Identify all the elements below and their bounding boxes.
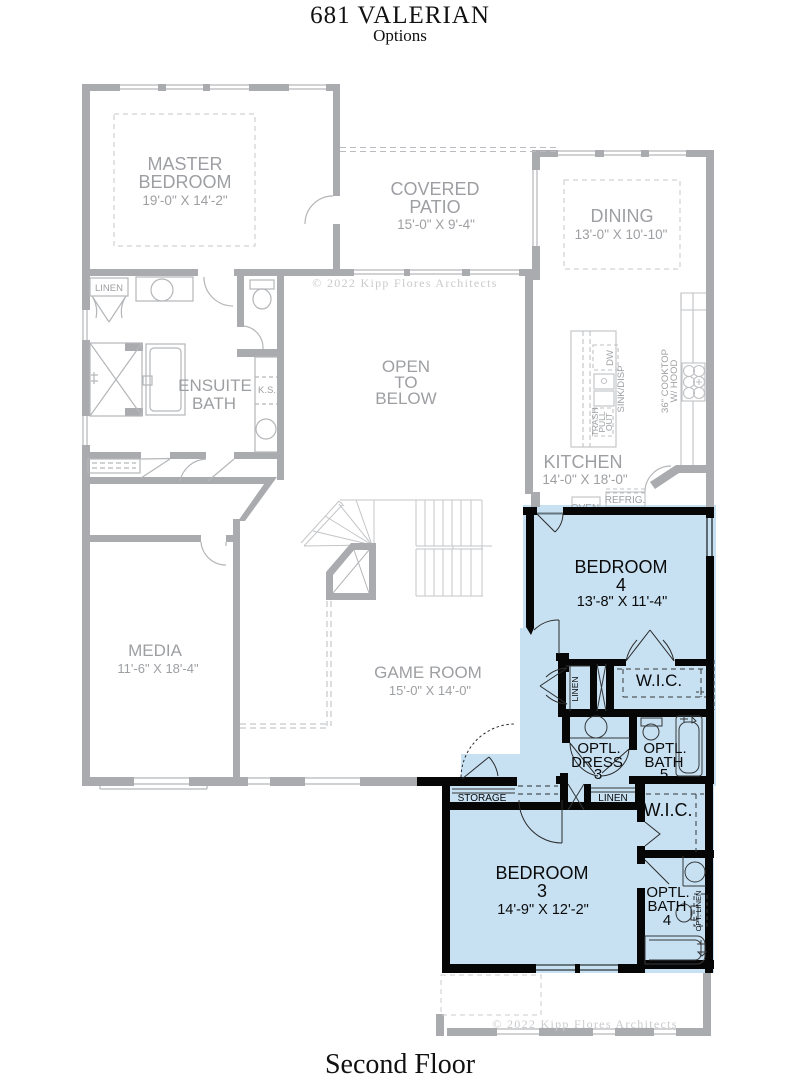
- svg-text:5: 5: [660, 766, 668, 783]
- svg-text:© 2022 Kipp Flores Architec: © 2022 Kipp Flores Architects: [492, 1017, 677, 1031]
- svg-text:LINEN: LINEN: [598, 793, 627, 804]
- svg-text:BEDROOM: BEDROOM: [138, 172, 231, 192]
- svg-text:W.I.C.: W.I.C.: [636, 671, 682, 690]
- svg-text:W/ HOOD: W/ HOOD: [669, 359, 680, 402]
- svg-text:OPT. LINEN: OPT. LINEN: [694, 891, 703, 932]
- svg-text:© 2022 Kipp Flores Architec: © 2022 Kipp Flores Architects: [312, 276, 497, 290]
- svg-text:13'-8" X 11'-4": 13'-8" X 11'-4": [577, 594, 668, 610]
- svg-text:GAME ROOM: GAME ROOM: [374, 663, 482, 682]
- svg-text:Options: Options: [373, 26, 427, 45]
- svg-text:REFRIG.: REFRIG.: [605, 495, 646, 506]
- svg-text:STORAGE: STORAGE: [458, 793, 507, 804]
- svg-text:14'-9" X 12'-2": 14'-9" X 12'-2": [497, 902, 589, 918]
- svg-text:ENSUITE: ENSUITE: [178, 376, 252, 395]
- svg-text:11'-6" X 18'-4": 11'-6" X 18'-4": [117, 661, 199, 676]
- svg-text:Second Floor: Second Floor: [325, 1049, 476, 1080]
- svg-text:14'-0" X 18'-0": 14'-0" X 18'-0": [542, 472, 627, 487]
- svg-text:19'-0" X 14'-2": 19'-0" X 14'-2": [142, 193, 227, 208]
- svg-text:BATH: BATH: [192, 394, 236, 413]
- svg-text:4: 4: [616, 575, 626, 595]
- svg-text:LINEN: LINEN: [95, 283, 123, 294]
- svg-text:SINK/DISP: SINK/DISP: [616, 366, 627, 413]
- svg-text:W.I.C.: W.I.C.: [644, 800, 693, 820]
- svg-text:3: 3: [537, 881, 547, 901]
- svg-text:DW: DW: [605, 350, 616, 366]
- svg-text:DINING: DINING: [591, 206, 654, 226]
- svg-text:KITCHEN: KITCHEN: [543, 452, 622, 472]
- svg-text:15'-0" X 14'-0": 15'-0" X 14'-0": [389, 683, 472, 698]
- svg-text:13'-0" X 10'-10": 13'-0" X 10'-10": [575, 227, 668, 242]
- svg-text:MEDIA: MEDIA: [128, 641, 183, 660]
- svg-text:3: 3: [594, 766, 602, 783]
- svg-text:LINEN: LINEN: [570, 676, 580, 701]
- svg-text:COVERED: COVERED: [390, 179, 479, 199]
- svg-text:BEDROOM: BEDROOM: [574, 557, 667, 577]
- svg-text:MASTER: MASTER: [147, 154, 222, 174]
- svg-text:BELOW: BELOW: [375, 389, 436, 408]
- svg-text:PATIO: PATIO: [409, 197, 460, 217]
- svg-text:15'-0" X 9'-4": 15'-0" X 9'-4": [397, 217, 475, 232]
- svg-text:681 VALERIAN: 681 VALERIAN: [310, 2, 490, 29]
- svg-text:K.S.: K.S.: [258, 385, 276, 396]
- svg-text:4: 4: [663, 912, 671, 929]
- svg-text:OUT: OUT: [604, 413, 614, 431]
- svg-text:BEDROOM: BEDROOM: [495, 863, 588, 883]
